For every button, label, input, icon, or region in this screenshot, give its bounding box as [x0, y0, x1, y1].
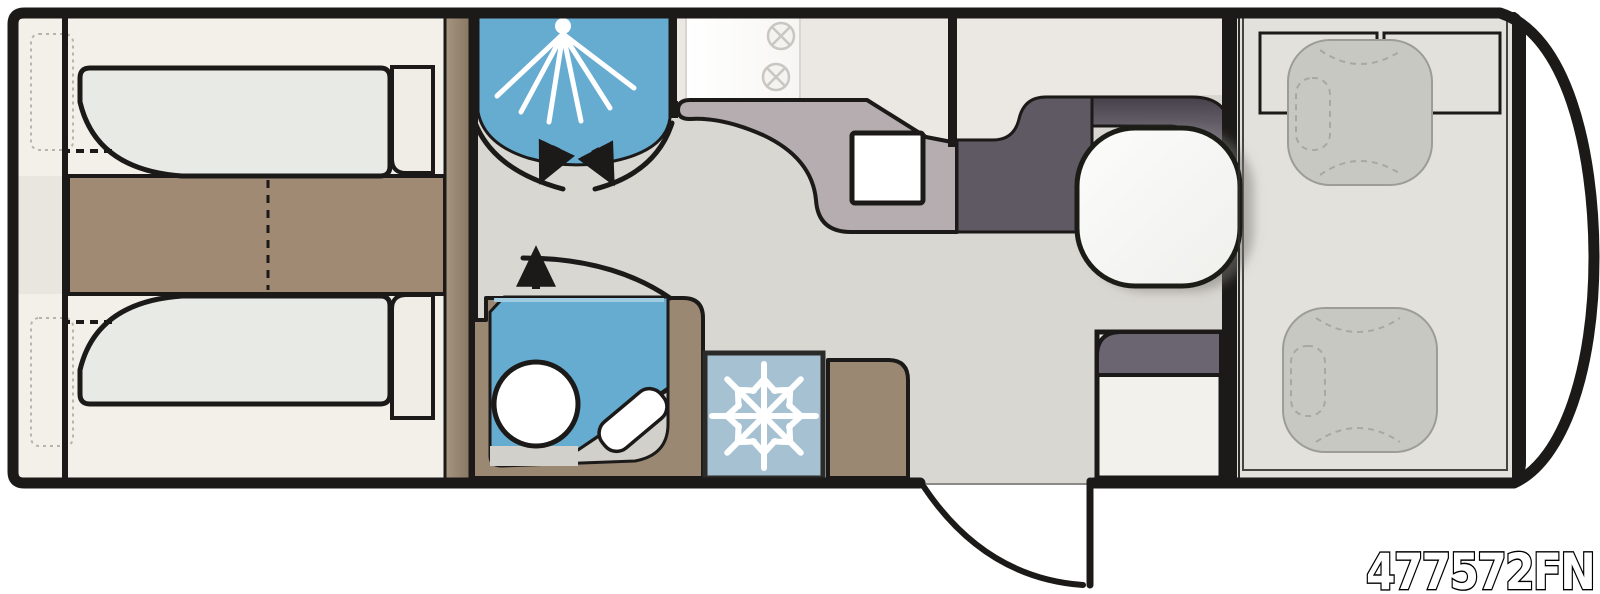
single-bed-bottom — [80, 296, 390, 404]
kitchen-sink — [852, 133, 923, 203]
snowflake-icon — [712, 364, 816, 468]
toilet — [494, 362, 578, 446]
floorplan-drawing: 477572FN — [0, 0, 1600, 594]
burner-icon — [768, 23, 794, 49]
entry-door-swing — [924, 487, 1083, 585]
swivel-seat-top — [1288, 40, 1432, 185]
headboard-shelf — [13, 176, 62, 294]
wardrobe — [445, 13, 470, 483]
between-beds-floor — [68, 176, 445, 294]
front-interior-wall — [1512, 12, 1526, 484]
swivel-seat-bottom — [1283, 308, 1437, 452]
kitchen-side-unit — [828, 360, 908, 478]
shower-right-wall — [670, 13, 678, 118]
kitchen-end-wall — [948, 10, 957, 147]
foot-chest-bottom — [392, 295, 433, 418]
model-code: 477572FN — [1366, 543, 1594, 594]
entry-bench-top — [1097, 332, 1221, 375]
burner-icon — [763, 64, 789, 90]
washbasin-shelf — [490, 446, 578, 466]
caravan-floorplan: 477572FN — [0, 0, 1600, 594]
dinette-table — [1077, 128, 1240, 286]
foot-chest-top — [392, 67, 433, 173]
single-bed-top — [80, 68, 390, 176]
